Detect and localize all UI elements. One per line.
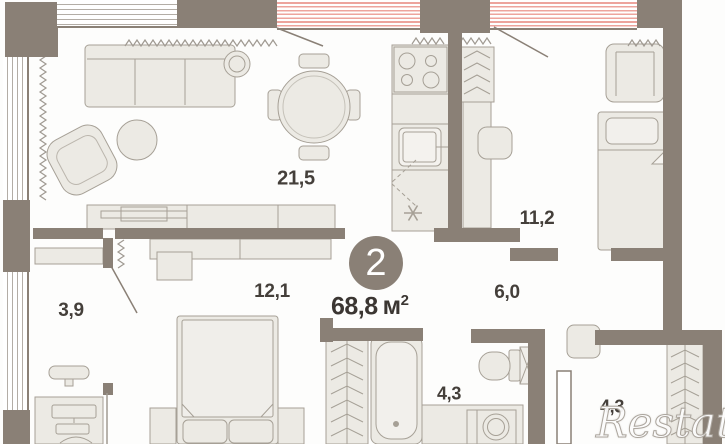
rooms-count-badge: 2 [349,236,403,290]
total-area-unit: м [383,292,401,320]
door-leaf-icon [557,371,571,444]
rooms-count: 2 [365,242,386,285]
total-area-value: 68,8 [331,292,378,320]
floor-plan: 21,5 11,2 12,1 3,9 6,0 4,3 4,3 2 68,8м2 … [0,0,725,444]
room-area-label-hallway: 6,0 [494,282,520,304]
room-area-label-living: 21,5 [277,168,315,191]
door-swing-line [277,28,323,46]
door-layer [0,0,725,444]
room-area-label-bedroom-left: 12,1 [254,281,290,303]
curtain-zigzag-icon [118,240,124,268]
watermark-logo: Restate [596,398,725,444]
total-area-label: 68,8м2 [331,292,409,321]
total-area-superscript: 2 [401,292,409,309]
room-area-label-cabinet: 3,9 [58,300,84,322]
room-area-label-bathroom: 4,3 [437,384,461,405]
door-swing-line [111,266,137,313]
door-swing-line [494,27,548,57]
room-area-label-bedroom-right: 11,2 [520,208,555,230]
